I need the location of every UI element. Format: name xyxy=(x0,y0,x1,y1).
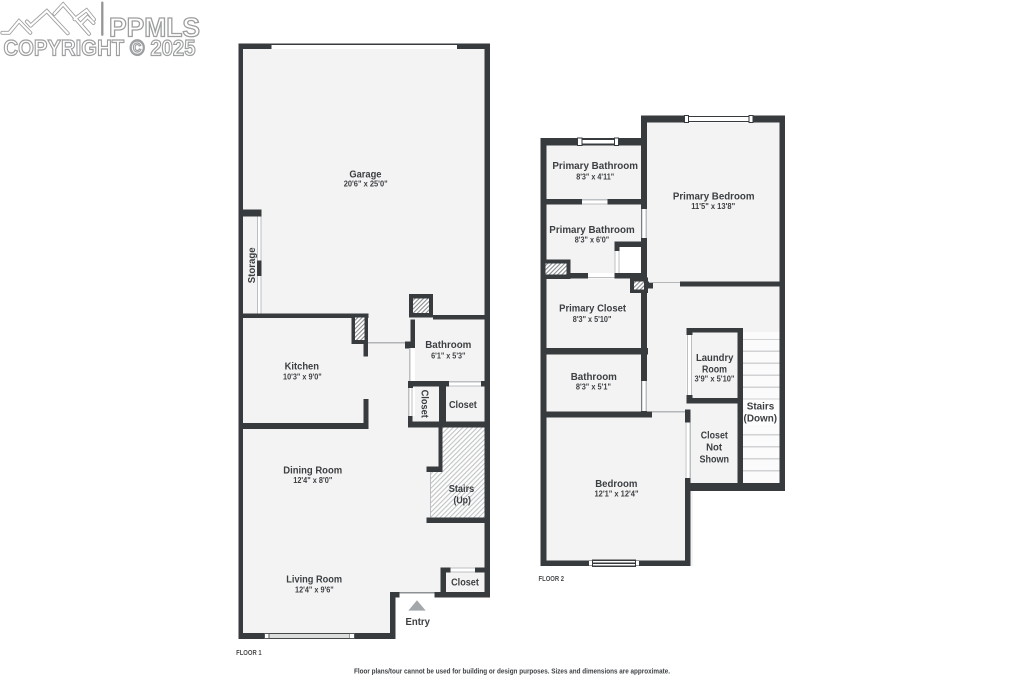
svg-text:12'4" x 8'0": 12'4" x 8'0" xyxy=(293,476,332,485)
svg-text:Kitchen: Kitchen xyxy=(285,362,319,373)
svg-text:Dining Room: Dining Room xyxy=(283,466,342,477)
svg-text:FLOOR 2: FLOOR 2 xyxy=(539,576,565,583)
svg-text:8'3" x 4'11": 8'3" x 4'11" xyxy=(576,173,614,182)
svg-text:Closet: Closet xyxy=(451,577,479,588)
svg-text:12'4" x 9'6": 12'4" x 9'6" xyxy=(295,586,334,595)
svg-text:12'1" x 12'4": 12'1" x 12'4" xyxy=(595,489,639,498)
svg-text:11'5" x 13'8": 11'5" x 13'8" xyxy=(691,202,735,211)
svg-text:Entry: Entry xyxy=(406,617,431,628)
svg-text:COPYRIGHT © 2025: COPYRIGHT © 2025 xyxy=(4,36,196,61)
svg-text:Not: Not xyxy=(706,442,723,453)
svg-text:Primary Closet: Primary Closet xyxy=(559,304,626,315)
svg-text:Closet: Closet xyxy=(418,390,429,419)
svg-text:(Up): (Up) xyxy=(453,496,471,507)
svg-text:Primary Bedroom: Primary Bedroom xyxy=(673,191,755,202)
svg-text:3'9" x 5'10": 3'9" x 5'10" xyxy=(695,374,735,383)
svg-text:Bathroom: Bathroom xyxy=(571,372,617,383)
svg-text:8'3" x 6'0": 8'3" x 6'0" xyxy=(575,235,610,244)
svg-text:Closet: Closet xyxy=(449,400,477,411)
svg-text:Storage: Storage xyxy=(247,247,258,283)
svg-text:Bedroom: Bedroom xyxy=(595,479,637,490)
svg-text:Primary Bathroom: Primary Bathroom xyxy=(549,225,634,236)
svg-text:Closet: Closet xyxy=(701,430,729,441)
svg-text:Living Room: Living Room xyxy=(286,575,342,586)
svg-text:Shown: Shown xyxy=(700,454,730,465)
svg-text:8'3" x 5'10": 8'3" x 5'10" xyxy=(573,315,612,324)
svg-text:(Down): (Down) xyxy=(744,413,778,424)
svg-text:Primary Bathroom: Primary Bathroom xyxy=(552,161,638,172)
svg-text:Laundry: Laundry xyxy=(696,353,734,364)
svg-text:Bathroom: Bathroom xyxy=(425,340,471,351)
svg-text:Stairs: Stairs xyxy=(449,484,475,495)
svg-text:10'3" x 9'0": 10'3" x 9'0" xyxy=(283,372,322,381)
svg-text:6'1" x 5'3": 6'1" x 5'3" xyxy=(431,351,466,360)
svg-text:8'3" x 5'1": 8'3" x 5'1" xyxy=(576,383,611,392)
svg-text:20'6" x 25'0": 20'6" x 25'0" xyxy=(344,180,388,189)
svg-text:Stairs: Stairs xyxy=(747,402,775,413)
svg-text:Floor plans/tour cannot be use: Floor plans/tour cannot be used for buil… xyxy=(354,666,670,675)
svg-text:FLOOR 1: FLOOR 1 xyxy=(236,650,262,657)
